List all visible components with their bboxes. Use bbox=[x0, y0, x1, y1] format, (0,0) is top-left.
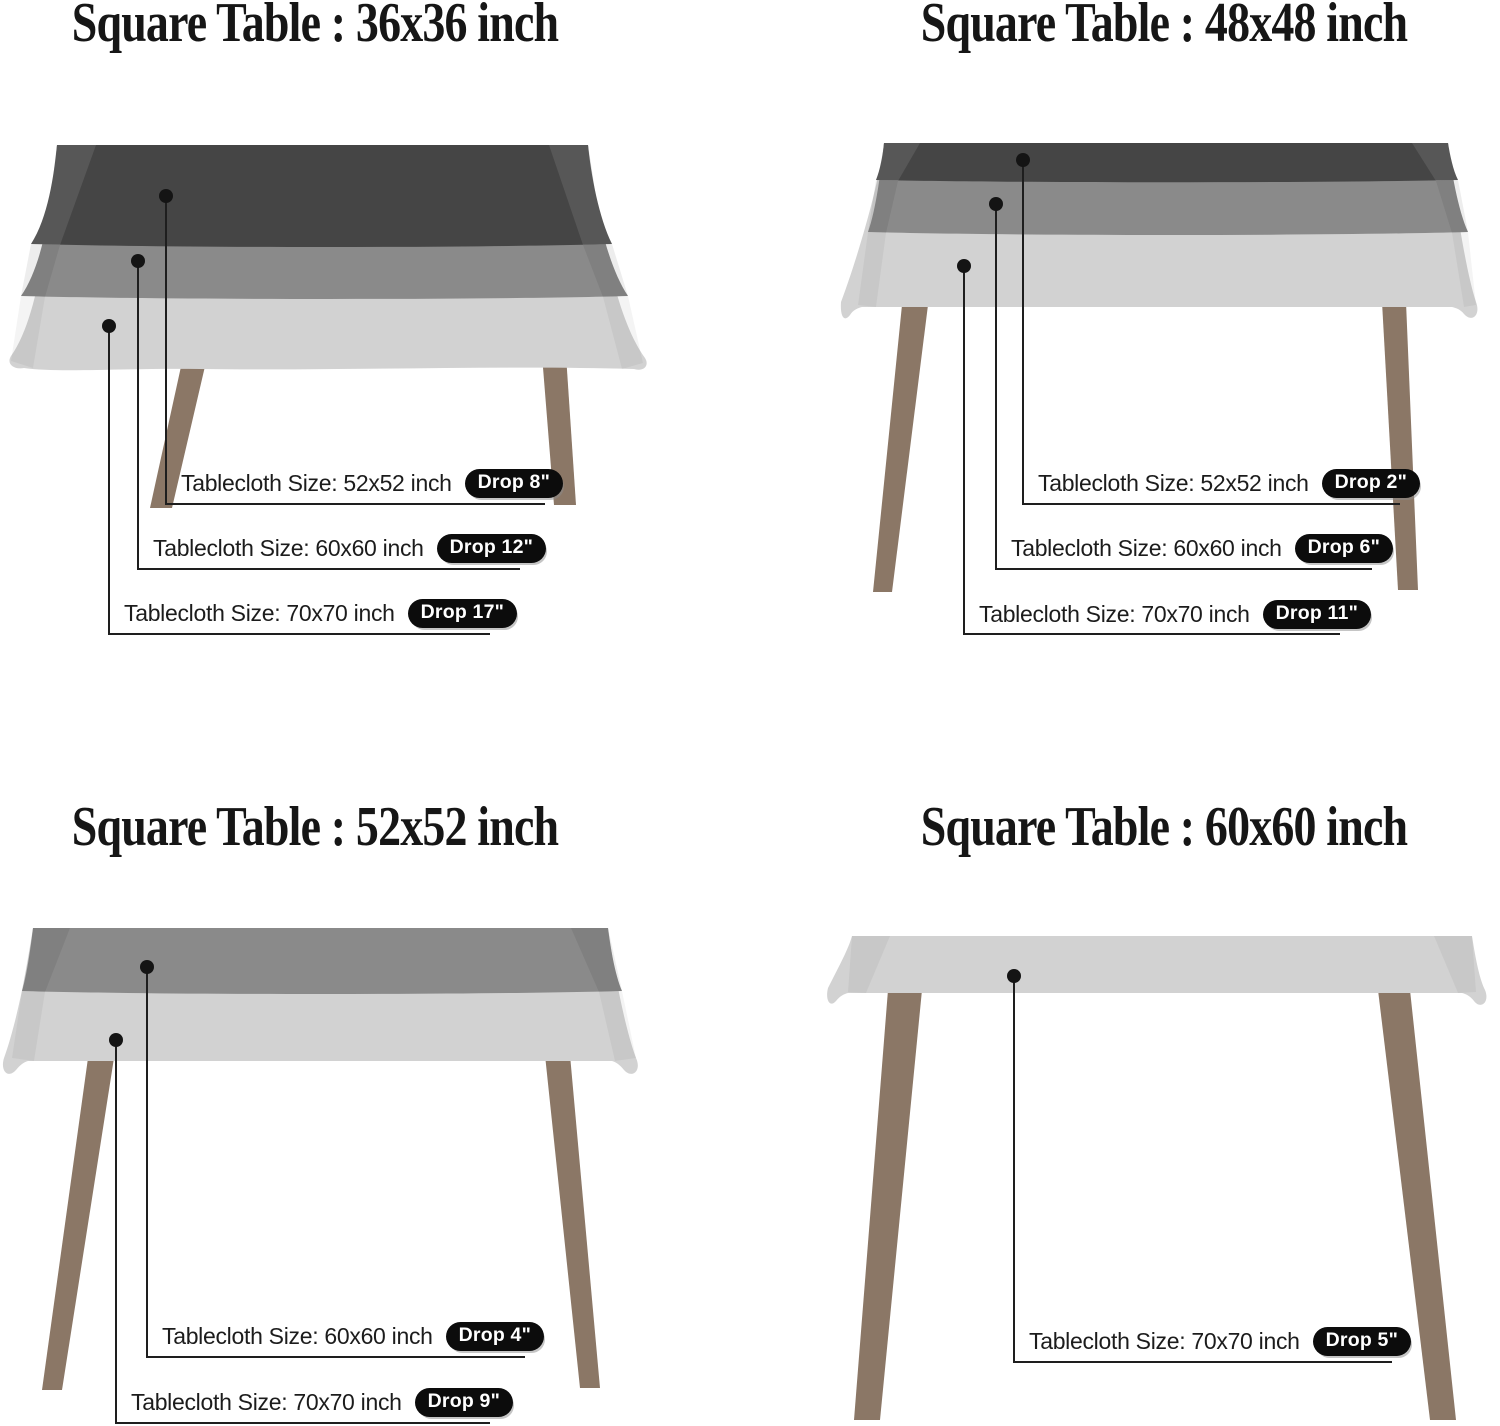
drop-badge: Drop 11" bbox=[1263, 600, 1371, 629]
tablecloth-size-label: Tablecloth Size: 70x70 inch bbox=[131, 1389, 402, 1416]
callout-dot bbox=[989, 197, 1003, 211]
drop-badge: Drop 6" bbox=[1295, 534, 1393, 563]
panel-table-52x52: Square Table : 52x52 inch Tablecloth Siz… bbox=[0, 713, 750, 1426]
table-leg bbox=[854, 990, 922, 1420]
panel-table-36x36: Square Table : 36x36 inch Tablecloth Siz… bbox=[0, 0, 750, 713]
size-callout: Tablecloth Size: 52x52 inch Drop 2" bbox=[1038, 465, 1420, 501]
tablecloth-size-label: Tablecloth Size: 60x60 inch bbox=[1011, 535, 1282, 562]
panel-table-60x60: Square Table : 60x60 inch Tablecloth Siz… bbox=[750, 713, 1500, 1426]
callout-dot bbox=[1007, 969, 1021, 983]
size-callout: Tablecloth Size: 70x70 inch Drop 17" bbox=[124, 595, 517, 631]
drop-badge: Drop 17" bbox=[408, 599, 517, 628]
drop-badge: Drop 4" bbox=[446, 1322, 544, 1351]
size-callout: Tablecloth Size: 60x60 inch Drop 4" bbox=[162, 1318, 544, 1354]
table-leg bbox=[873, 305, 928, 592]
table-leg bbox=[42, 1058, 114, 1390]
size-callout: Tablecloth Size: 60x60 inch Drop 6" bbox=[1011, 530, 1393, 566]
callout-leader bbox=[115, 1041, 490, 1424]
callout-dot bbox=[131, 254, 145, 268]
callout-dot bbox=[109, 1033, 123, 1047]
panel-title-52x52: Square Table : 52x52 inch bbox=[69, 798, 561, 857]
callout-dot bbox=[1016, 153, 1030, 167]
tablecloth-size-label: Tablecloth Size: 60x60 inch bbox=[162, 1323, 433, 1350]
drop-badge: Drop 12" bbox=[437, 534, 546, 563]
drop-badge: Drop 2" bbox=[1322, 469, 1420, 498]
size-callout: Tablecloth Size: 52x52 inch Drop 8" bbox=[181, 465, 563, 501]
callout-leader bbox=[963, 267, 1340, 635]
callout-dot bbox=[957, 259, 971, 273]
tablecloth-size-label: Tablecloth Size: 70x70 inch bbox=[979, 601, 1250, 628]
callout-dot bbox=[159, 189, 173, 203]
callout-dot bbox=[140, 960, 154, 974]
callout-leader bbox=[1013, 977, 1392, 1363]
tablecloth-size-label: Tablecloth Size: 60x60 inch bbox=[153, 535, 424, 562]
panel-title-36x36: Square Table : 36x36 inch bbox=[69, 0, 561, 53]
table-leg bbox=[545, 1055, 600, 1388]
drop-badge: Drop 8" bbox=[465, 469, 563, 498]
tablecloth-size-label: Tablecloth Size: 70x70 inch bbox=[1029, 1328, 1300, 1355]
panel-title-60x60: Square Table : 60x60 inch bbox=[918, 798, 1410, 857]
drop-badge: Drop 5" bbox=[1313, 1327, 1411, 1356]
size-callout: Tablecloth Size: 60x60 inch Drop 12" bbox=[153, 530, 546, 566]
size-callout: Tablecloth Size: 70x70 inch Drop 9" bbox=[131, 1384, 513, 1420]
size-callout: Tablecloth Size: 70x70 inch Drop 5" bbox=[1029, 1323, 1411, 1359]
tablecloth-size-label: Tablecloth Size: 52x52 inch bbox=[181, 470, 452, 497]
panel-table-48x48: Square Table : 48x48 inch Tablecloth Siz… bbox=[750, 0, 1500, 713]
drop-badge: Drop 9" bbox=[415, 1388, 513, 1417]
size-callout: Tablecloth Size: 70x70 inch Drop 11" bbox=[979, 596, 1371, 632]
panel-title-48x48: Square Table : 48x48 inch bbox=[918, 0, 1410, 53]
tablecloth-size-label: Tablecloth Size: 52x52 inch bbox=[1038, 470, 1309, 497]
callout-dot bbox=[102, 319, 116, 333]
tablecloth-size-label: Tablecloth Size: 70x70 inch bbox=[124, 600, 395, 627]
